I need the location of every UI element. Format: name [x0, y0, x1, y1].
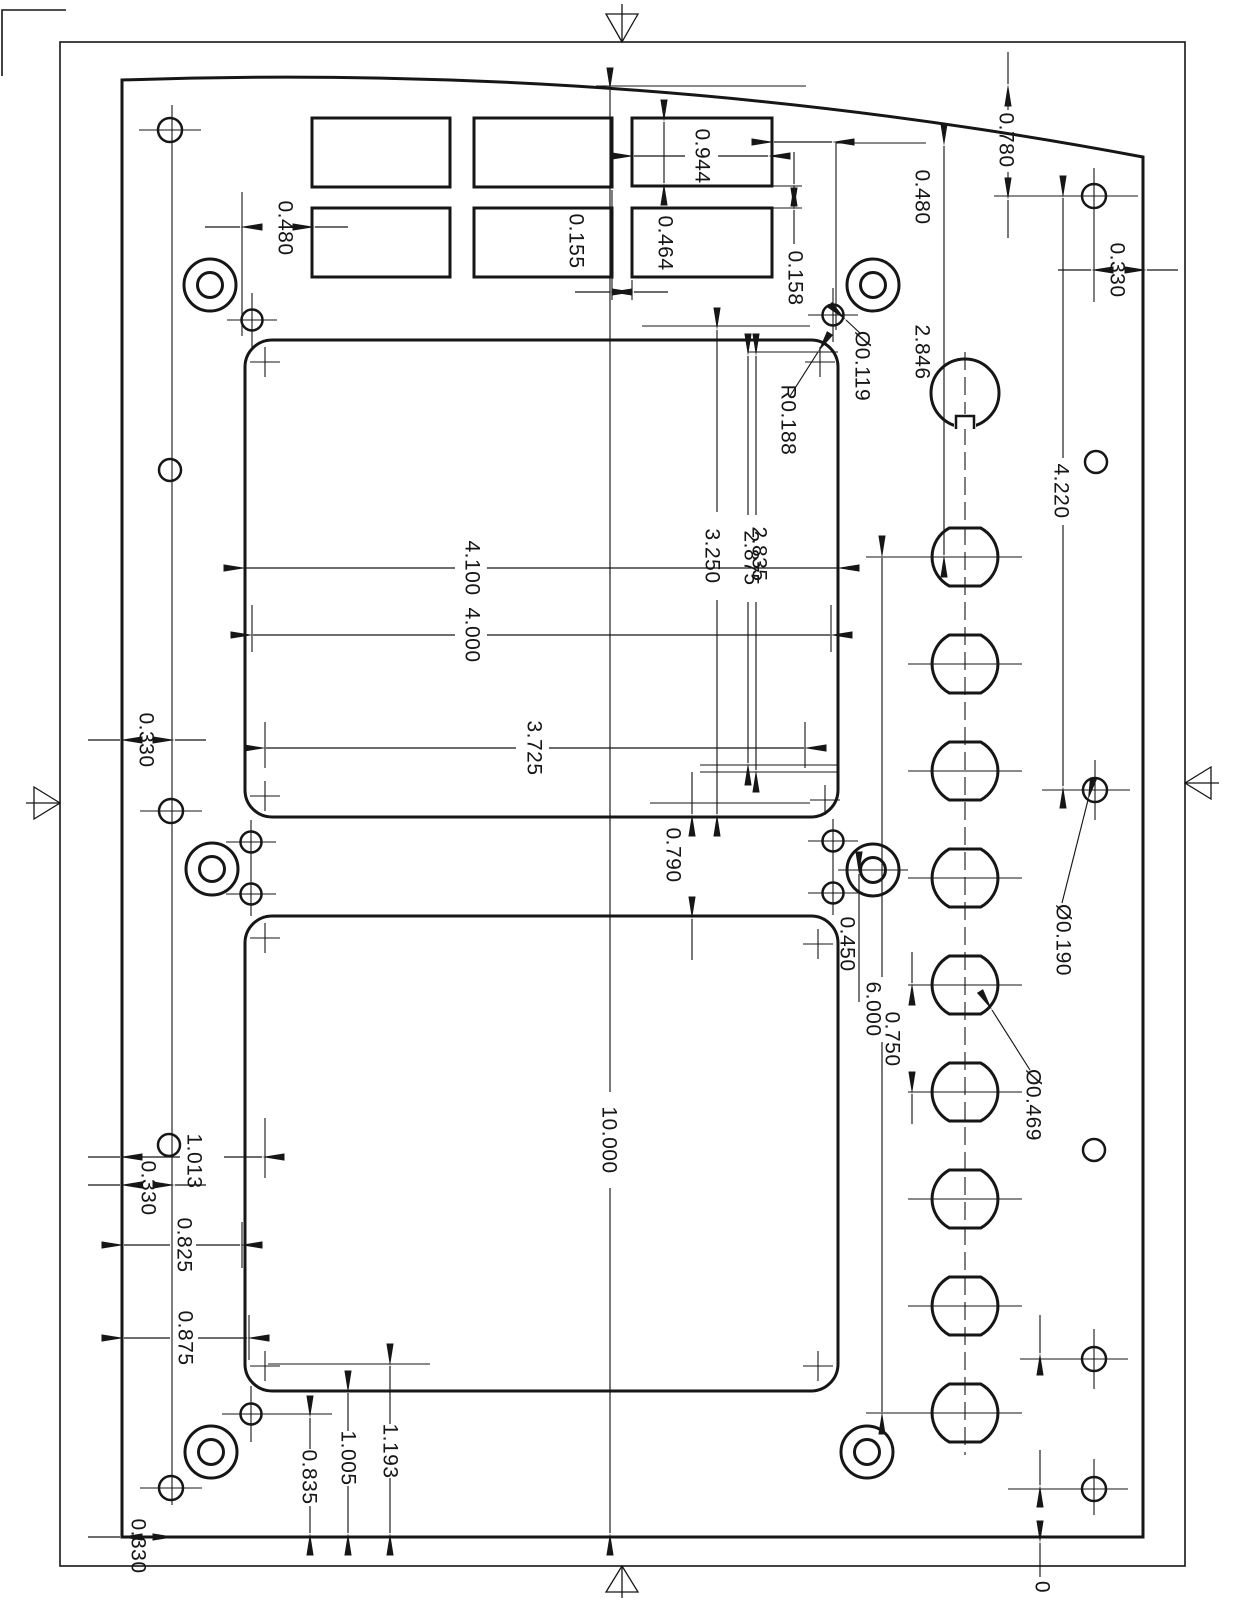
dim-4000-label: 4.000: [460, 607, 483, 662]
dia-0190-label: Ø0.190: [1051, 904, 1074, 976]
cutout-rect: [312, 118, 450, 187]
small-hole: [159, 459, 181, 481]
dia-0119-label: Ø0.119: [850, 331, 873, 401]
small-hole: [1085, 451, 1107, 473]
dim-0480-right-label: 0.480: [910, 169, 933, 224]
dim-0790-label: 0.790: [661, 827, 684, 882]
dim-0158-label: 0.158: [783, 250, 806, 305]
centerlines: [172, 105, 1022, 1505]
dim-10000-label: 10.000: [597, 1106, 620, 1173]
crosshair-hole: [1042, 760, 1130, 820]
dim-0330-bottomleft-label: 0.330: [136, 1160, 159, 1215]
bullseye-hole: [186, 843, 238, 895]
small-hole: [1083, 1139, 1105, 1161]
display-cutout-lower: [245, 916, 838, 1391]
dim-0825-label: 0.825: [172, 1217, 195, 1272]
bullseye-hole: [847, 259, 899, 311]
dim-0330-topright-label: 0.330: [1105, 242, 1128, 297]
crosshair-hole: [1008, 1459, 1128, 1515]
dimension-labels: 0.944 0.480 0.155 0.464 0.158 0.780 0.48…: [126, 112, 1128, 1593]
dim-3725-label: 3.725: [522, 720, 545, 775]
origin-zero-label: 0: [1030, 1581, 1053, 1593]
dim-0835-label: 0.835: [297, 1449, 320, 1504]
small-hole: [158, 1134, 180, 1156]
dimension-lines: [88, 52, 1178, 1577]
dim-2846-label: 2.846: [910, 324, 933, 379]
dim-0464-label: 0.464: [653, 215, 676, 270]
dim-0450-label: 0.450: [835, 916, 858, 971]
dim-0330-left-label: 0.330: [134, 712, 157, 767]
corner-bracket-mark: [2, 10, 66, 76]
dia-0469-label: Ø0.469: [1021, 1069, 1044, 1141]
dim-1013-label: 1.013: [182, 1133, 205, 1188]
dim-0875-label: 0.875: [173, 1310, 196, 1365]
dim-2835-label: 2.835: [747, 526, 770, 581]
dim-0750-label: 0.750: [880, 1011, 903, 1066]
dim-0780-label: 0.780: [994, 112, 1017, 167]
cutout-rect: [474, 118, 612, 187]
dim-0330-bottom-label: 0.330: [126, 1518, 149, 1573]
display-cutouts: [245, 340, 838, 1391]
cad-drawing-canvas: 0.944 0.480 0.155 0.464 0.158 0.780 0.48…: [0, 0, 1237, 1600]
dim-1005-label: 1.005: [336, 1430, 359, 1485]
bullseye-hole: [185, 1426, 237, 1478]
corner-cross-marks: [250, 347, 840, 1381]
dim-0155-label: 0.155: [564, 213, 587, 268]
dim-0944-label: 0.944: [690, 128, 713, 183]
bullseye-hole: [184, 259, 236, 311]
cutout-rect: [474, 208, 612, 277]
dim-4100-label: 4.100: [460, 540, 483, 595]
rad-0188-label: R0.188: [776, 385, 799, 456]
cad-sheet: 0.944 0.480 0.155 0.464 0.158 0.780 0.48…: [0, 0, 1237, 1600]
crosshair-hole: [139, 118, 201, 142]
crosshair-hole: [222, 1386, 332, 1442]
cutout-rect: [312, 208, 450, 277]
dim-0480-left-label: 0.480: [273, 200, 296, 255]
dim-3250-label: 3.250: [700, 528, 723, 583]
dim-4220-label: 4.220: [1049, 463, 1072, 518]
bullseye-hole: [841, 1426, 893, 1478]
cutout-rect: [632, 208, 772, 277]
crosshair-hole: [140, 799, 202, 823]
crosshair-hole: [140, 1476, 202, 1500]
crosshair-hole: [1020, 1329, 1128, 1389]
dim-1193-label: 1.193: [378, 1423, 401, 1478]
